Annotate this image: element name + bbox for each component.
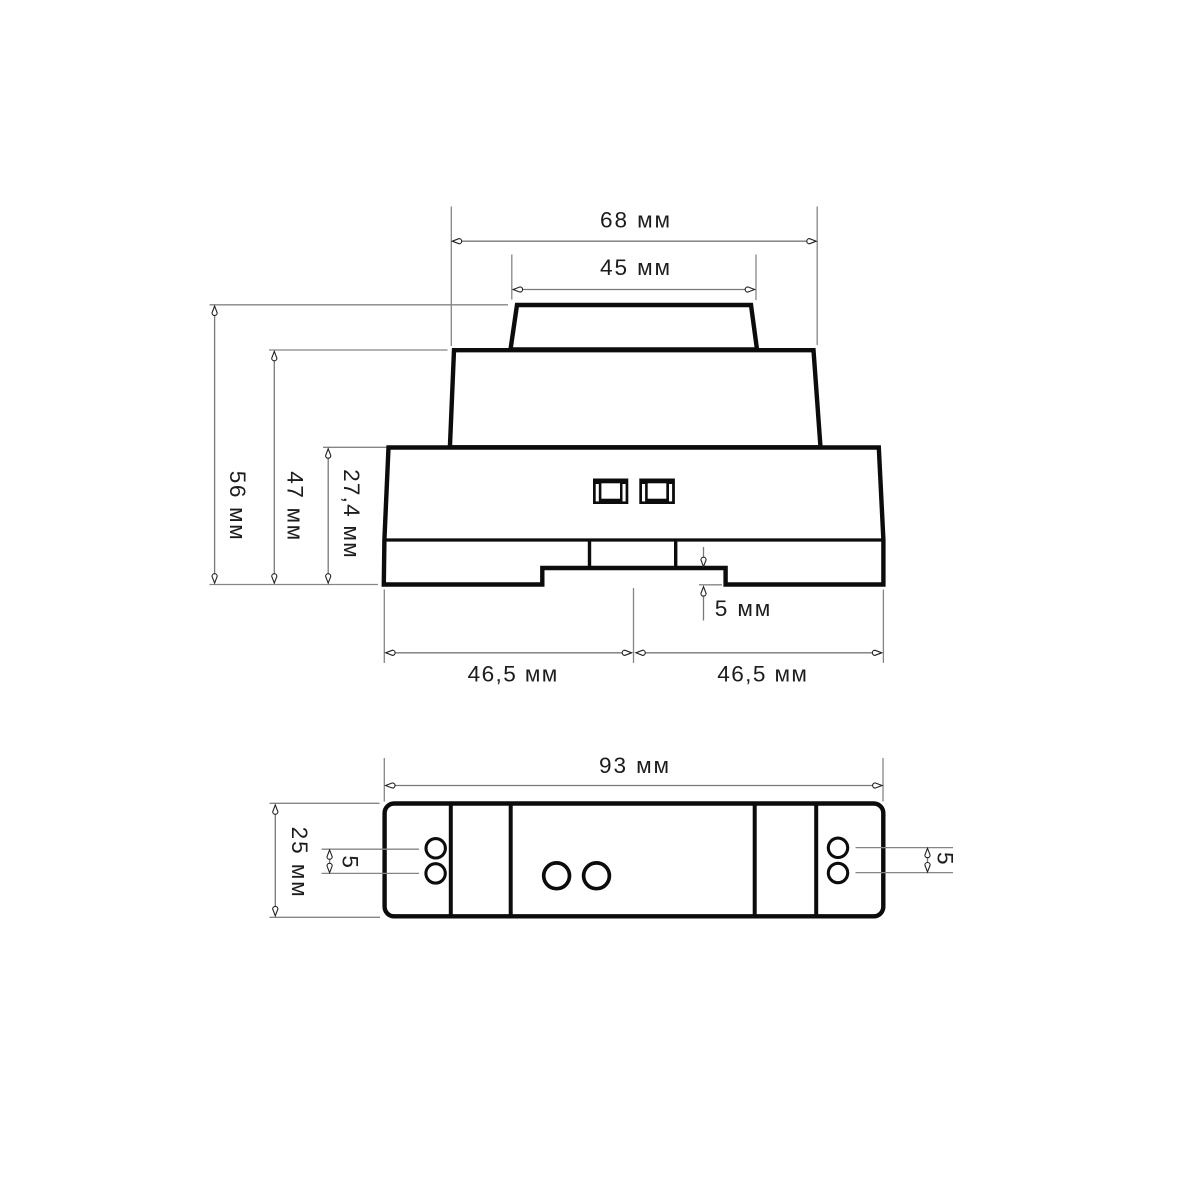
svg-text:93 мм: 93 мм — [599, 753, 671, 778]
svg-text:56 мм: 56 мм — [225, 471, 250, 541]
svg-text:27,4 мм: 27,4 мм — [339, 469, 364, 559]
svg-text:5: 5 — [933, 852, 958, 865]
svg-text:5 мм: 5 мм — [715, 596, 773, 621]
svg-text:47 мм: 47 мм — [283, 471, 308, 541]
svg-text:25 мм: 25 мм — [287, 827, 312, 899]
svg-text:68 мм: 68 мм — [600, 208, 672, 233]
svg-text:46,5 мм: 46,5 мм — [717, 662, 808, 687]
svg-text:45 мм: 45 мм — [600, 255, 672, 280]
svg-text:5: 5 — [338, 855, 363, 868]
svg-text:46,5 мм: 46,5 мм — [468, 662, 559, 687]
